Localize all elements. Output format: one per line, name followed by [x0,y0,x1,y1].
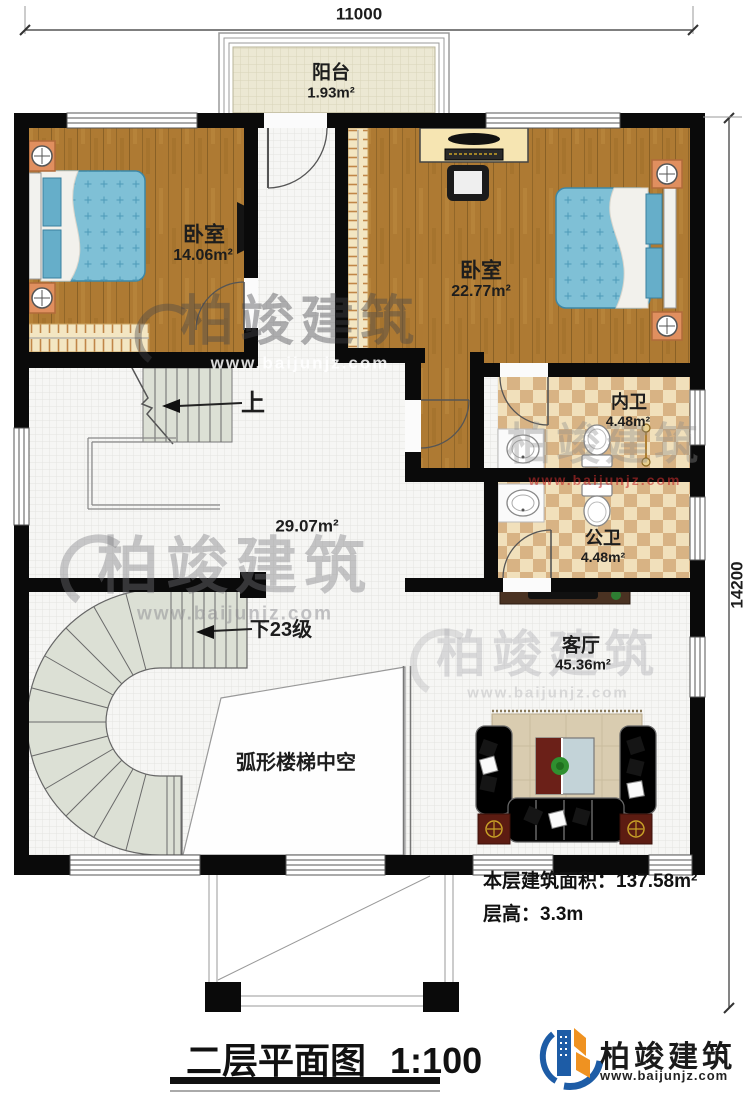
public-bathroom-area: 4.48m² [581,550,625,564]
bedroom-right-bed [556,188,676,308]
brand-logo-icon [543,1028,600,1086]
floor-plan-page: 柏竣建筑 www.baijunjz.com 柏竣建筑 www.baijunjz.… [0,0,750,1103]
floor-plan-drawing [0,0,750,1103]
window-bottom-1 [70,855,200,875]
balcony-label: 阳台 [312,64,350,83]
living-room-area: 45.36m² [555,658,611,673]
public-bathroom-label: 公卫 [585,529,621,547]
bedroom-right-label: 卧室 [460,261,502,282]
floor-area-note: 本层建筑面积：137.58m² [483,872,697,891]
bedroom-left-label: 卧室 [183,225,225,246]
stair-down-label: 下23级 [250,620,312,640]
window-right-3 [690,637,705,697]
window-right-2 [690,497,705,560]
brand-url: www.baijunjz.com [600,1068,728,1083]
dimension-top-label: 11000 [336,6,382,23]
window-right-1 [690,390,705,445]
living-room-label: 客厅 [562,637,600,656]
page-title-text: 二层平面图 [186,1040,366,1081]
hall-area: 29.07m² [275,518,338,535]
dimension-right-label: 14200 [729,561,746,608]
coffee-table [536,738,594,794]
bedroom-left-bed [29,171,145,281]
window-left [14,428,29,525]
window-top-right [486,113,620,128]
bedroom-left-area: 14.06m² [173,248,233,264]
window-top-left [67,113,197,128]
inner-bathroom-area: 4.48m² [606,414,650,428]
bedroom-right-desk [420,128,528,162]
porch-column-left [205,982,241,1012]
inner-bathroom-label: 内卫 [611,393,647,411]
page-title-scale: 1:100 [390,1040,482,1081]
vestibule-floor [421,352,470,468]
stair-up-label: 上 [241,392,265,416]
window-bottom-2 [286,855,385,875]
stair-void-label: 弧形楼梯中空 [236,753,356,773]
page-title: 二层平面图 1:100 [186,1032,482,1084]
floor-height-note: 层高：3.3m [483,905,583,924]
bedroom-right-chair [447,165,489,201]
porch-column-right [423,982,459,1012]
title-underline-thin [170,1090,440,1092]
balcony-area: 1.93m² [307,86,355,101]
bedroom-right-area: 22.77m² [451,284,511,300]
porch-outline [209,875,453,1006]
